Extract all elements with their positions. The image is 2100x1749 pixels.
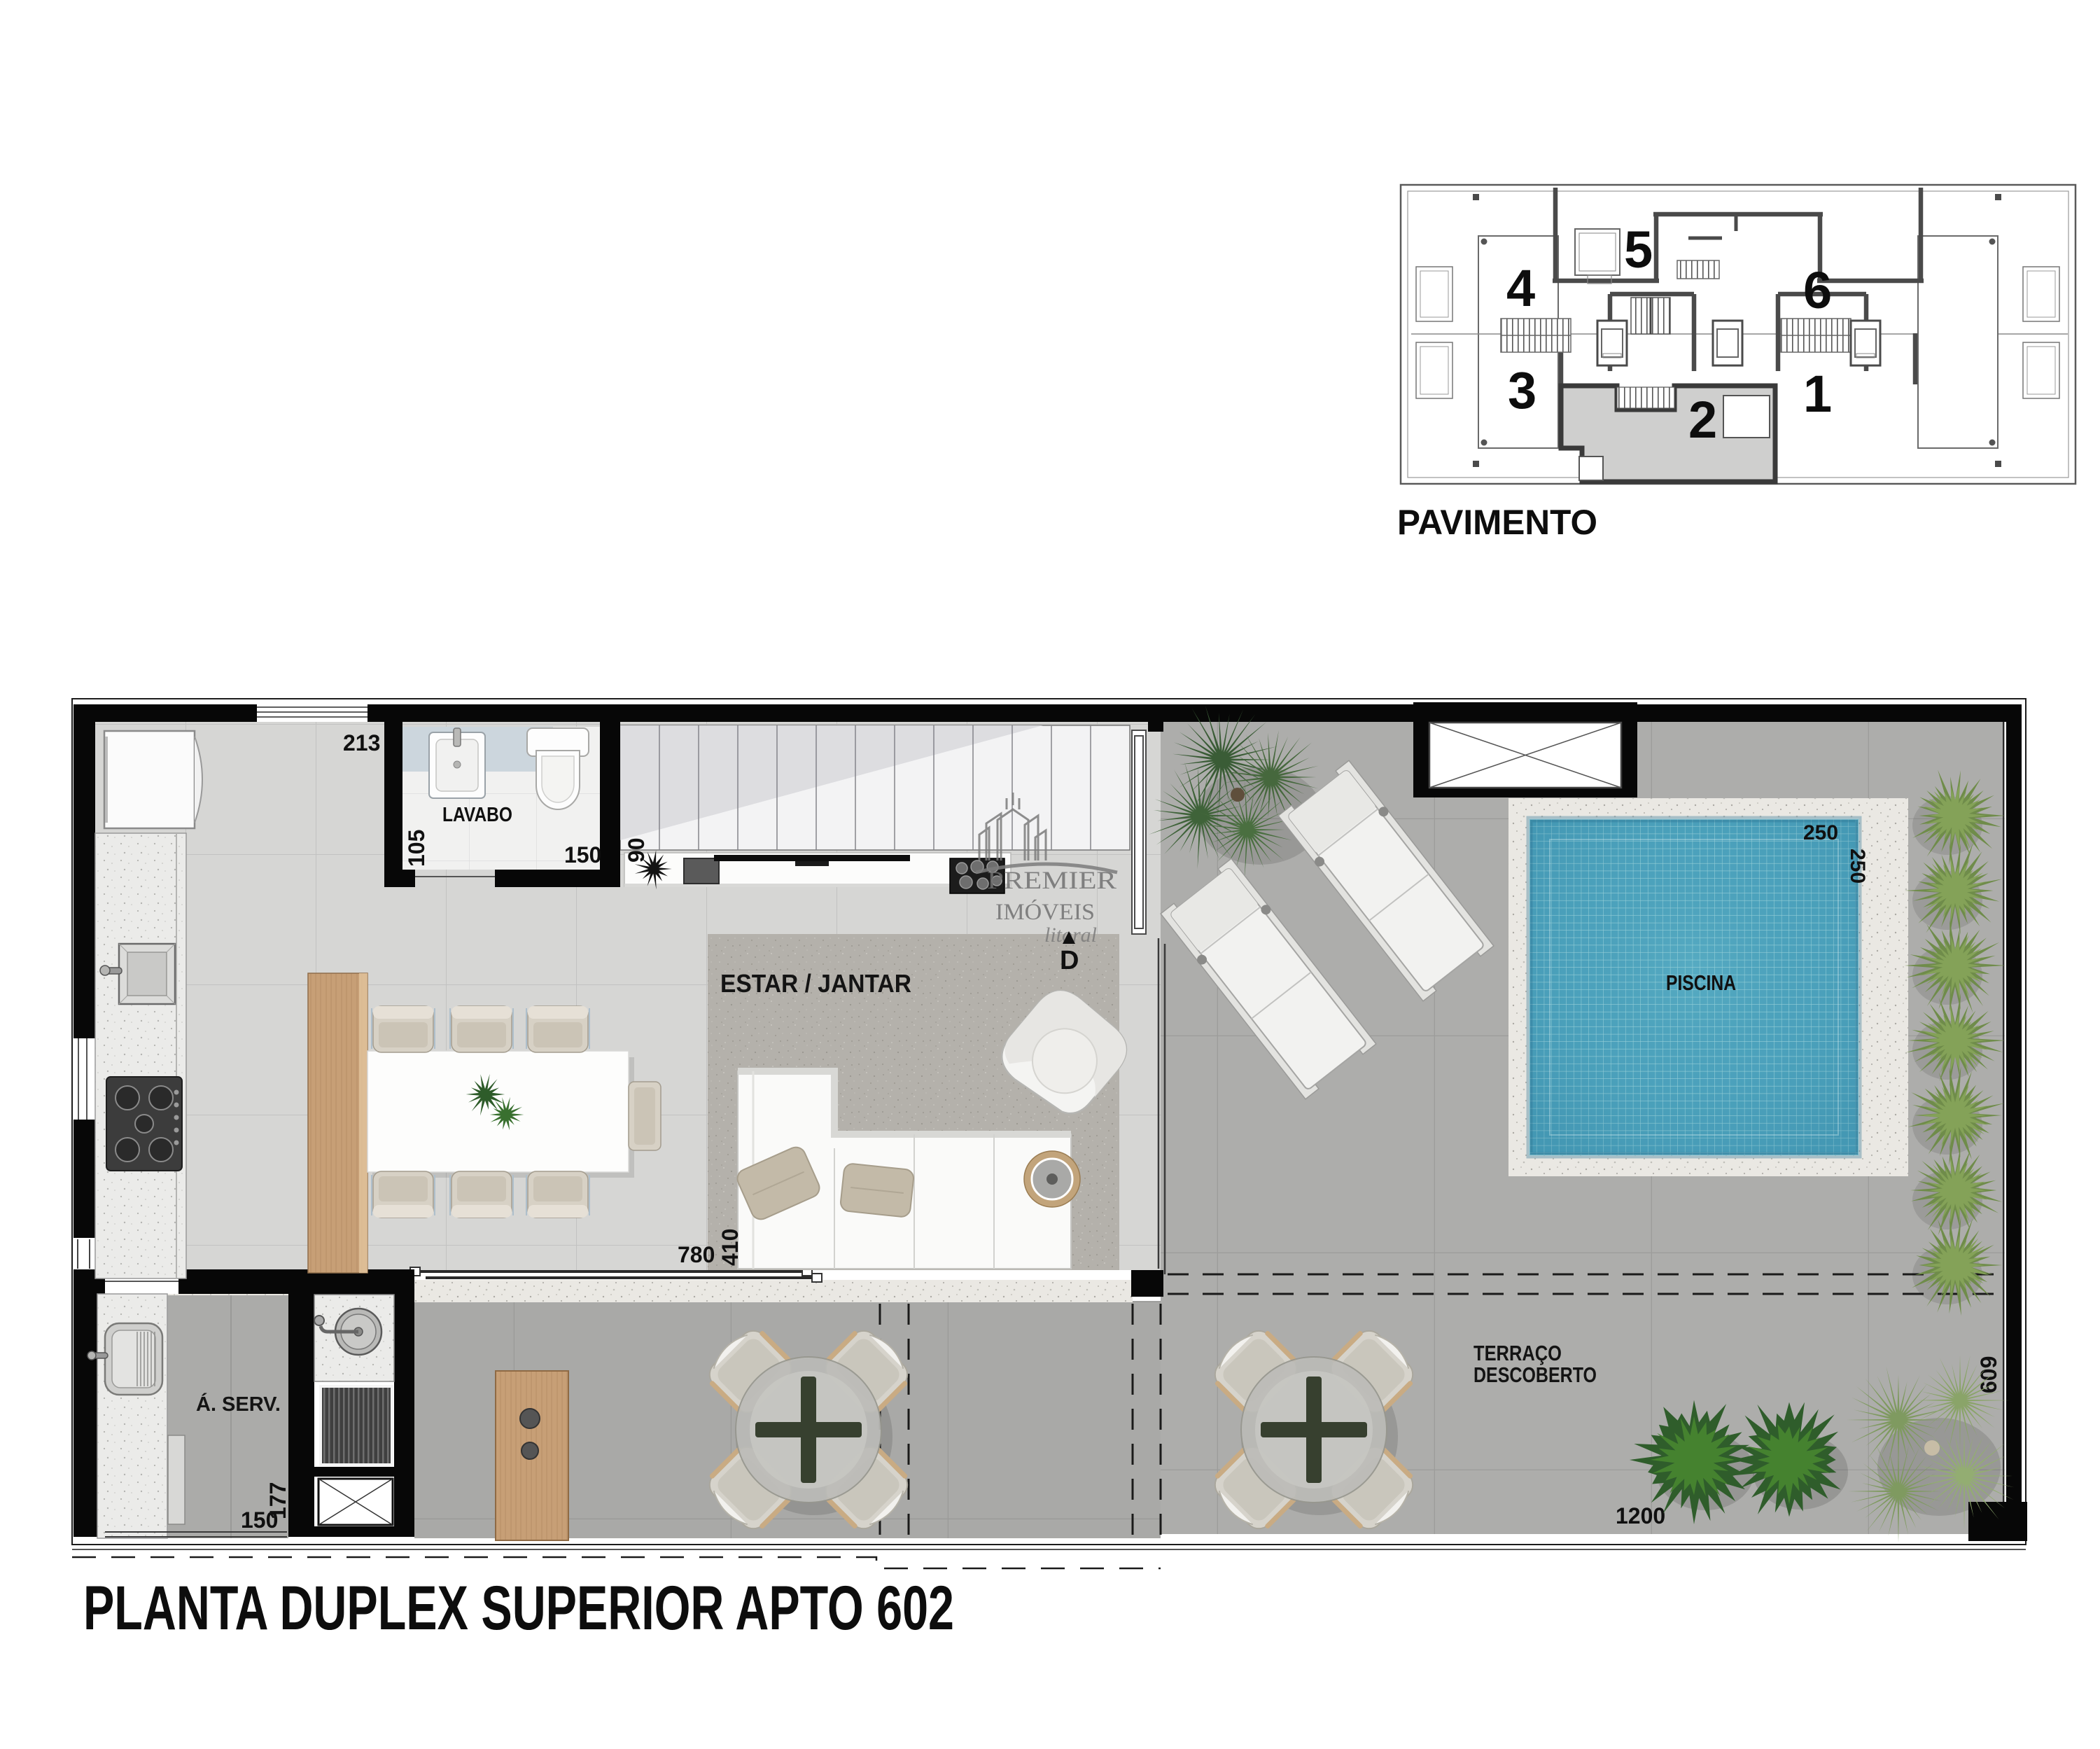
- svg-text:410: 410: [717, 1229, 743, 1266]
- svg-text:PISCINA: PISCINA: [1666, 970, 1736, 995]
- svg-text:IMÓVEIS: IMÓVEIS: [995, 898, 1095, 925]
- svg-text:DESCOBERTO: DESCOBERTO: [1473, 1363, 1597, 1387]
- svg-text:2: 2: [1688, 391, 1717, 449]
- svg-text:Á. SERV.: Á. SERV.: [196, 1392, 281, 1416]
- svg-text:PREMIER: PREMIER: [987, 866, 1116, 894]
- svg-text:6: 6: [1803, 261, 1832, 319]
- svg-text:TERRAÇO: TERRAÇO: [1473, 1341, 1562, 1365]
- svg-text:D: D: [1060, 946, 1079, 975]
- svg-text:780: 780: [678, 1242, 715, 1267]
- svg-text:4: 4: [1506, 259, 1535, 317]
- svg-text:ESTAR / JANTAR: ESTAR / JANTAR: [720, 969, 911, 998]
- svg-text:250: 250: [1846, 849, 1869, 884]
- svg-text:250: 250: [1803, 821, 1838, 844]
- svg-text:PAVIMENTO: PAVIMENTO: [1397, 503, 1597, 542]
- svg-text:5: 5: [1624, 221, 1653, 279]
- svg-text:3: 3: [1508, 361, 1536, 419]
- svg-text:LAVABO: LAVABO: [442, 804, 512, 826]
- svg-text:90: 90: [624, 837, 649, 863]
- svg-text:609: 609: [1976, 1356, 2001, 1393]
- svg-text:150: 150: [564, 842, 601, 867]
- svg-text:105: 105: [404, 830, 429, 867]
- svg-text:150: 150: [241, 1507, 278, 1533]
- svg-text:213: 213: [343, 730, 380, 755]
- svg-text:1: 1: [1803, 365, 1832, 423]
- svg-text:PLANTA DUPLEX SUPERIOR APTO 60: PLANTA DUPLEX SUPERIOR APTO 602: [83, 1573, 954, 1643]
- svg-text:1200: 1200: [1616, 1503, 1665, 1528]
